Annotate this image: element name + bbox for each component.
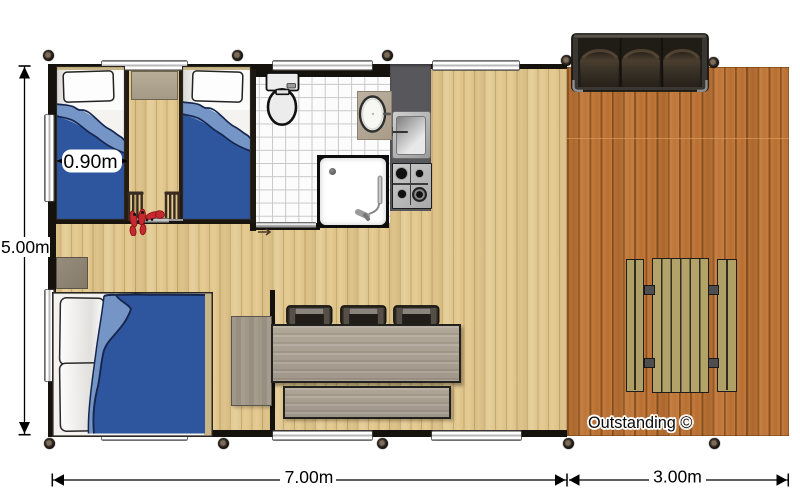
svg-text:0.90m: 0.90m [63, 151, 117, 173]
svg-text:3.00m: 3.00m [653, 467, 702, 487]
svg-text:7.00m: 7.00m [285, 467, 334, 487]
